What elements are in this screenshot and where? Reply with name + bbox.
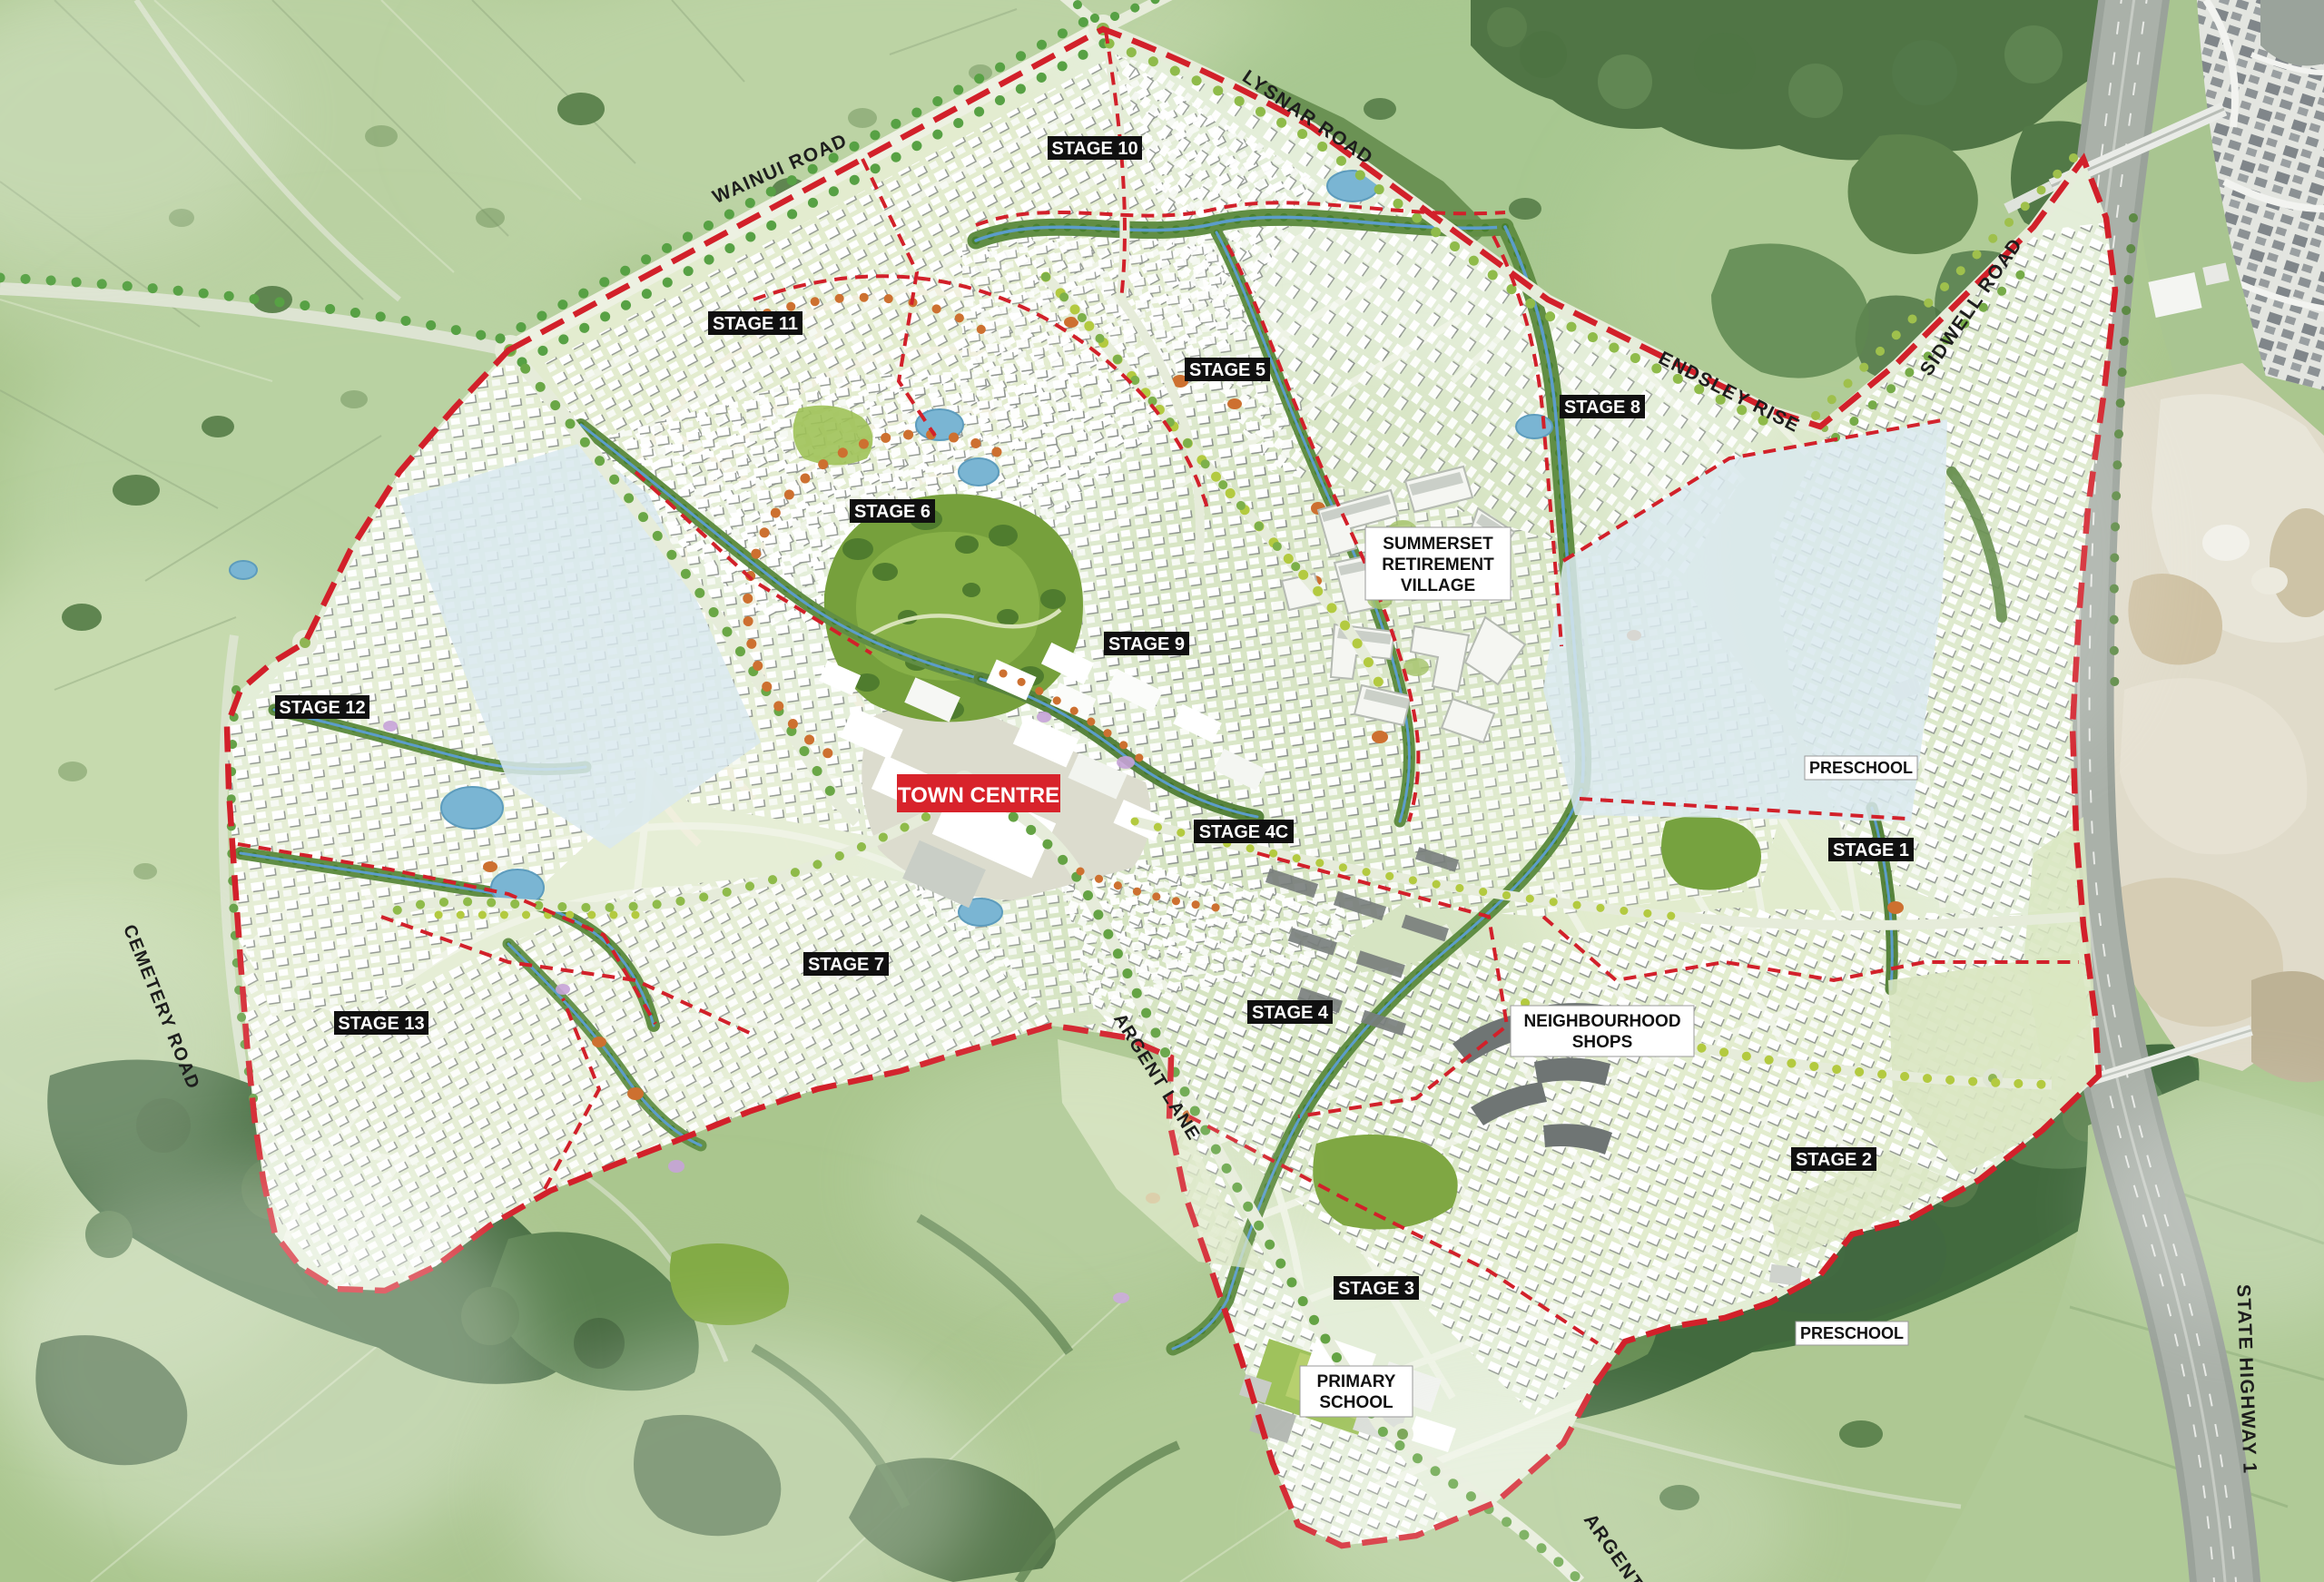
svg-text:STAGE 1: STAGE 1 [1833, 840, 1909, 860]
svg-text:STAGE 13: STAGE 13 [338, 1014, 424, 1034]
svg-text:STAGE 10: STAGE 10 [1051, 139, 1137, 159]
svg-text:SCHOOL: SCHOOL [1319, 1393, 1393, 1412]
svg-text:STAGE 5: STAGE 5 [1189, 360, 1265, 380]
svg-text:NEIGHBOURHOOD: NEIGHBOURHOOD [1523, 1012, 1680, 1031]
svg-text:STAGE 7: STAGE 7 [808, 955, 884, 975]
svg-text:VILLAGE: VILLAGE [1401, 576, 1475, 595]
svg-text:PRIMARY: PRIMARY [1317, 1372, 1396, 1391]
svg-text:TOWN CENTRE: TOWN CENTRE [898, 783, 1059, 808]
svg-text:SUMMERSET: SUMMERSET [1383, 535, 1493, 554]
svg-text:RETIREMENT: RETIREMENT [1382, 555, 1494, 575]
svg-text:STAGE 12: STAGE 12 [279, 698, 365, 718]
svg-text:PRESCHOOL: PRESCHOOL [1809, 759, 1913, 777]
svg-text:SHOPS: SHOPS [1572, 1033, 1633, 1052]
svg-text:STAGE 3: STAGE 3 [1338, 1279, 1414, 1299]
svg-text:STAGE 9: STAGE 9 [1108, 634, 1185, 654]
svg-text:PRESCHOOL: PRESCHOOL [1800, 1324, 1904, 1342]
svg-text:STAGE 2: STAGE 2 [1796, 1150, 1872, 1170]
svg-text:STAGE 4C: STAGE 4C [1199, 822, 1289, 842]
svg-text:STAGE 11: STAGE 11 [713, 314, 798, 334]
svg-text:STAGE 4: STAGE 4 [1252, 1003, 1329, 1023]
svg-text:STAGE 8: STAGE 8 [1564, 398, 1640, 418]
svg-text:STAGE 6: STAGE 6 [854, 502, 931, 522]
